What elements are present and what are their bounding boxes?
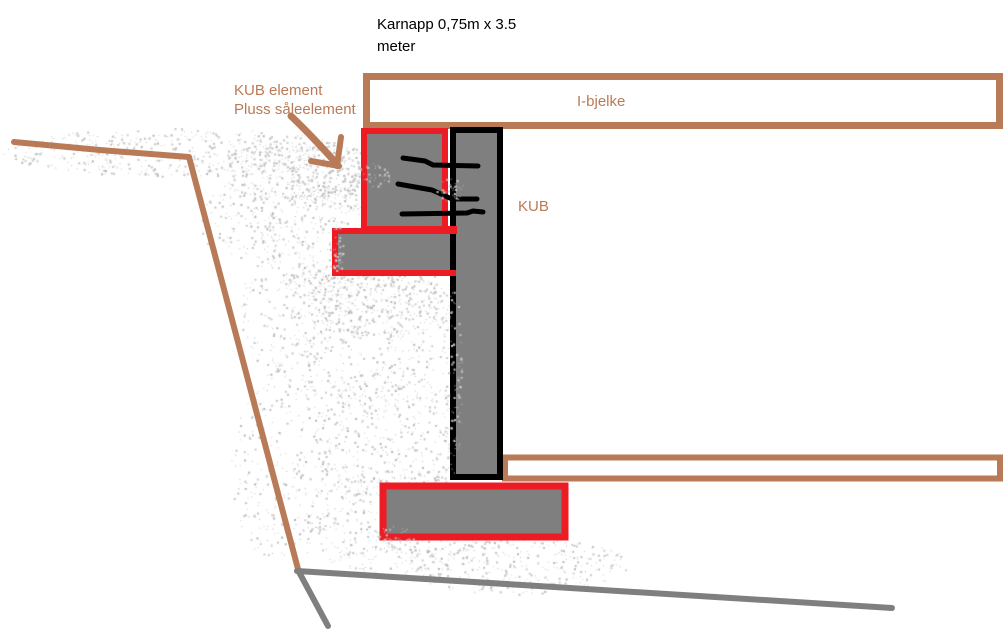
karnapp-dimension-line1: Karnapp 0,75m x 3.5 — [377, 14, 516, 36]
karnapp-dimension-label: Karnapp 0,75m x 3.5 meter — [377, 14, 516, 58]
spray-texture-over — [0, 0, 1008, 630]
kub-element-label-line2: Pluss såleelement — [234, 100, 356, 119]
karnapp-dimension-line2: meter — [377, 36, 516, 58]
kub-wall-label: KUB — [518, 197, 549, 216]
kub-element-label: KUB element Pluss såleelement — [234, 81, 356, 119]
i-bjelke-label: I-bjelke — [577, 92, 625, 111]
paint-canvas: Karnapp 0,75m x 3.5 meter KUB element Pl… — [0, 0, 1008, 630]
kub-element-label-line1: KUB element — [234, 81, 356, 100]
